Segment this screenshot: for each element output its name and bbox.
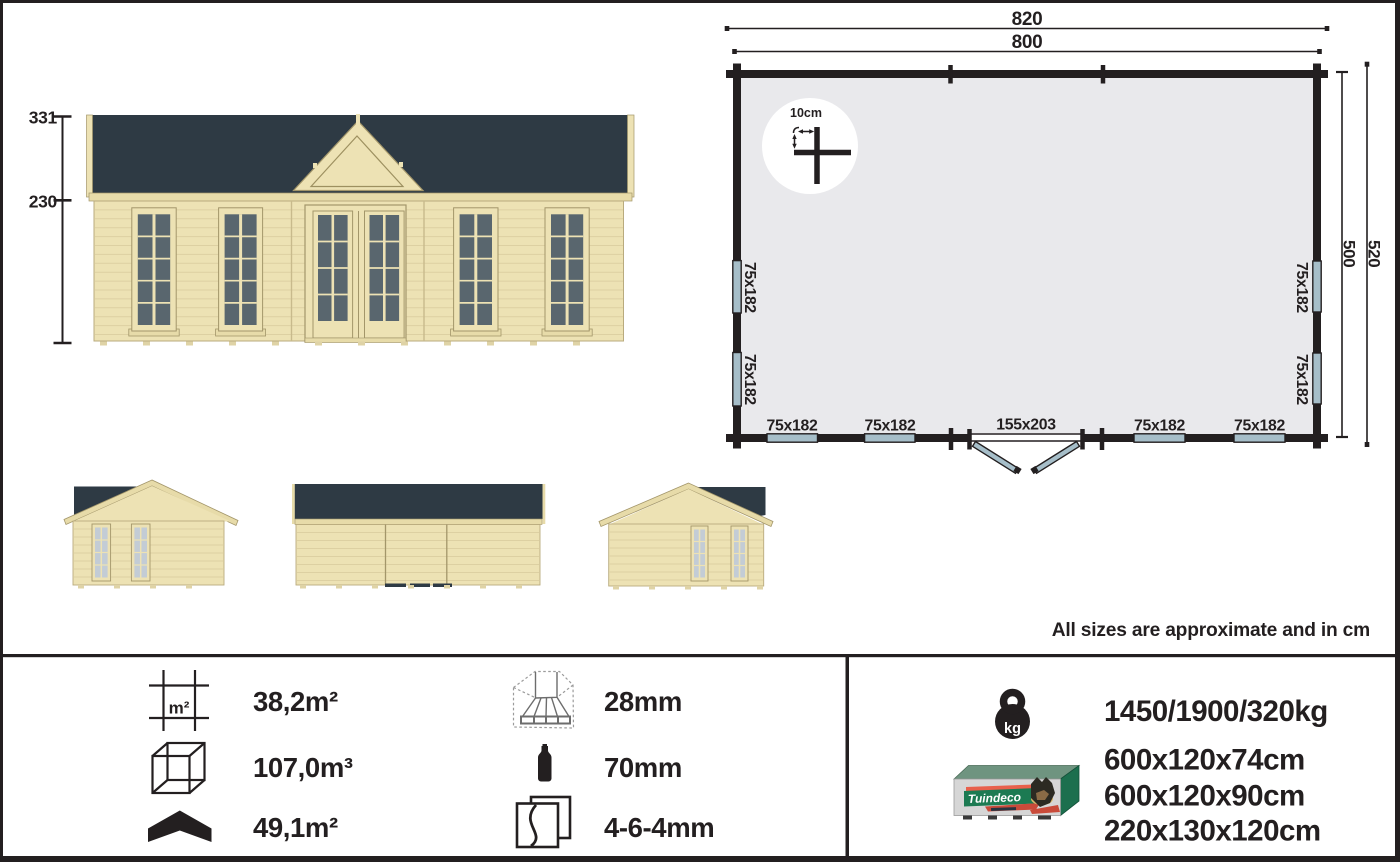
svg-text:800: 800 <box>1012 32 1043 53</box>
svg-text:75x182: 75x182 <box>741 262 758 313</box>
svg-text:230: 230 <box>29 192 58 212</box>
svg-text:49,1m²: 49,1m² <box>253 812 338 843</box>
svg-text:75x182: 75x182 <box>767 418 818 435</box>
svg-text:75x182: 75x182 <box>1293 262 1310 313</box>
svg-text:155x203: 155x203 <box>996 417 1056 434</box>
svg-text:75x182: 75x182 <box>741 354 758 405</box>
svg-text:70mm: 70mm <box>604 752 682 783</box>
svg-text:820: 820 <box>1012 9 1043 30</box>
svg-text:75x182: 75x182 <box>1293 354 1310 405</box>
svg-text:220x130x120cm: 220x130x120cm <box>1104 815 1321 848</box>
svg-text:520: 520 <box>1365 240 1384 267</box>
svg-text:m²: m² <box>169 699 190 718</box>
svg-text:Tuindeco: Tuindeco <box>968 790 1022 806</box>
svg-text:75x182: 75x182 <box>1234 418 1285 435</box>
svg-text:1450/1900/320kg: 1450/1900/320kg <box>1104 695 1328 728</box>
svg-text:75x182: 75x182 <box>865 418 916 435</box>
svg-text:75x182: 75x182 <box>1134 418 1185 435</box>
svg-text:331: 331 <box>29 108 58 128</box>
svg-text:600x120x74cm: 600x120x74cm <box>1104 744 1305 777</box>
svg-text:28mm: 28mm <box>604 686 682 717</box>
svg-text:500: 500 <box>1340 240 1359 267</box>
svg-text:kg: kg <box>1004 721 1021 737</box>
svg-text:600x120x90cm: 600x120x90cm <box>1104 780 1305 813</box>
svg-text:4-6-4mm: 4-6-4mm <box>604 812 714 843</box>
svg-text:10cm: 10cm <box>790 106 822 120</box>
svg-text:38,2m²: 38,2m² <box>253 686 338 717</box>
svg-text:107,0m³: 107,0m³ <box>253 752 353 783</box>
svg-text:All sizes are approximate and: All sizes are approximate and in cm <box>1052 620 1370 641</box>
